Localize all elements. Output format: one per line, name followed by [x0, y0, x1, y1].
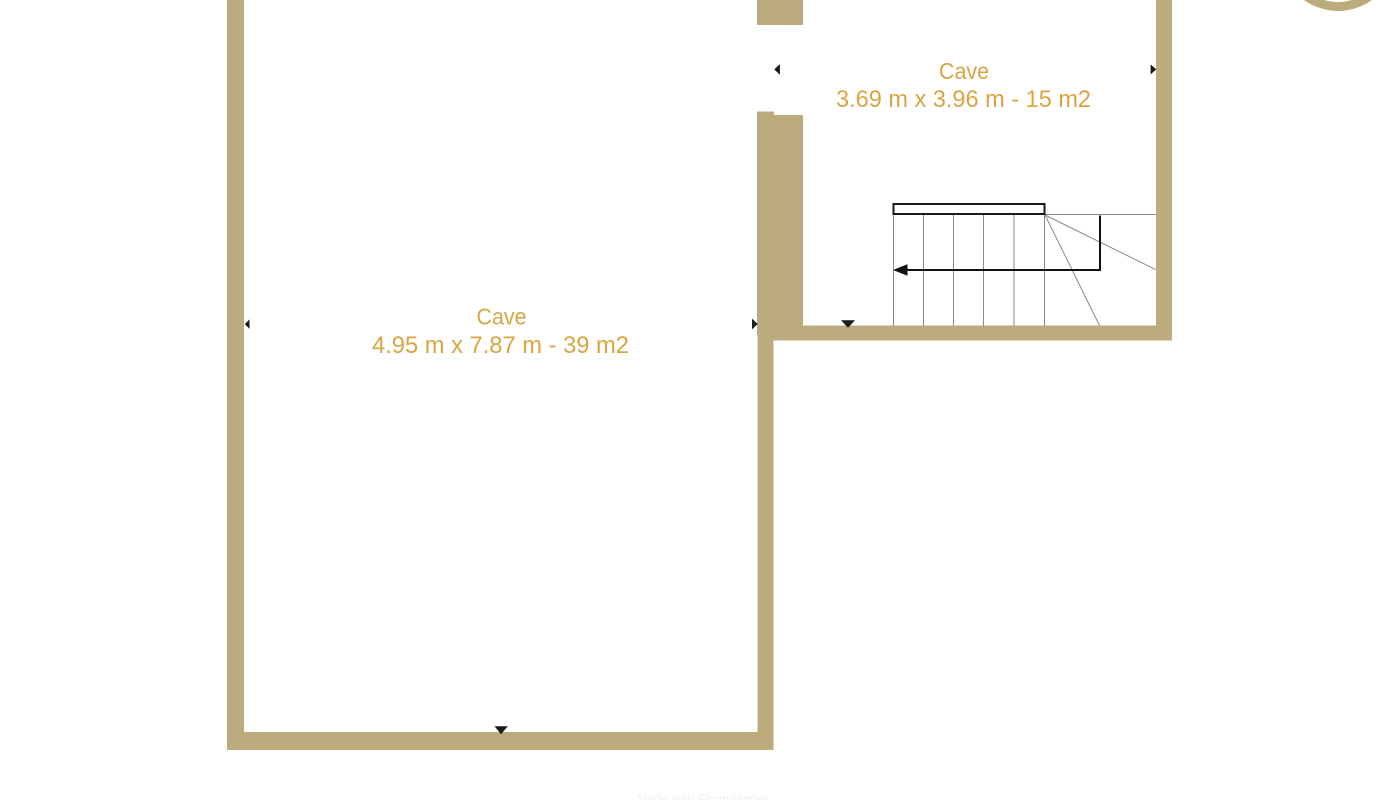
- svg-text:4.95 m x 7.87 m - 39 m2: 4.95 m x 7.87 m - 39 m2: [372, 332, 629, 359]
- svg-text:Made with Floorplanner: Made with Floorplanner: [637, 791, 768, 800]
- svg-text:3.69 m x 3.96 m - 15 m2: 3.69 m x 3.96 m - 15 m2: [836, 86, 1091, 113]
- svg-text:Cave: Cave: [477, 304, 527, 330]
- svg-text:Cave: Cave: [939, 58, 989, 84]
